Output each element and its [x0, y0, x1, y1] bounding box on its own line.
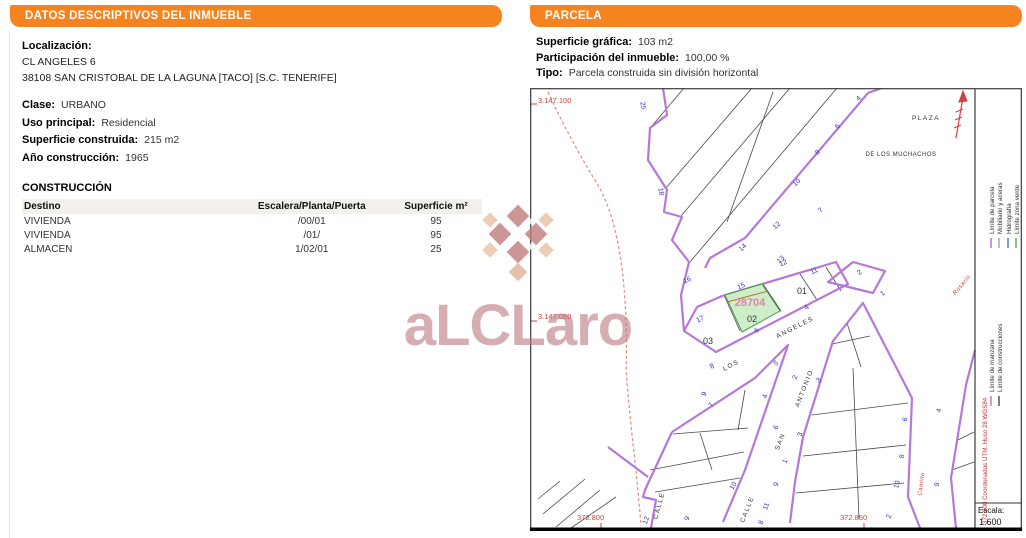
cell-escalera: /01/ — [234, 228, 390, 242]
plaza-label-2: DE LOS MUCHACHOS — [865, 152, 936, 158]
table-header-row: Destino Escalera/Planta/Puerta Superfici… — [22, 199, 482, 214]
field-label: Superficie gráfica: — [536, 36, 632, 48]
cell-destino: VIVIENDA — [22, 214, 234, 228]
field-value: 1965 — [125, 152, 148, 164]
cadastral-map: 3.147.100 3.147.050 372.800 372.850 PLAZ… — [530, 88, 1022, 531]
field-superficie: Superficie construida:215 m2 — [22, 132, 492, 150]
field-clase: Clase:URBANO — [22, 97, 492, 115]
parcel-ref-label: 28704 — [735, 297, 766, 309]
parcela-info: Superficie gráfica:103 m2 Participación … — [536, 35, 1022, 82]
field-value: Residencial — [101, 117, 155, 129]
table-row: VIVIENDA /01/ 95 — [22, 228, 482, 242]
field-label: Uso principal: — [22, 117, 95, 129]
legend-limite-manzana: Límite de manzana — [989, 339, 996, 392]
legend-mobiliario-aceras: Mobiliario y aceras — [997, 182, 1004, 234]
field-uso: Uso principal:Residencial — [22, 115, 492, 133]
datos-inmueble-panel: Localización: CL ANGELES 6 38108 SAN CRI… — [22, 38, 492, 256]
parcela-header: PARCELA — [530, 5, 1022, 27]
table-row: VIVIENDA /00/01 95 — [22, 214, 482, 228]
legend-limite-zona-verde: Límite zona verde — [1014, 184, 1021, 234]
legend-utm-note: 372.900 Coordenadas UTM. Huso 28 WGS84 — [982, 397, 989, 524]
field-participacion: Participación del inmueble:100,00 % — [536, 51, 1022, 67]
scale-value: 1.600 — [979, 517, 1002, 527]
cell-destino: VIVIENDA — [22, 228, 234, 242]
cell-superficie: 95 — [390, 228, 482, 242]
localizacion-label: Localización: — [22, 38, 492, 54]
coord-mid-left: 3.147.050 — [538, 312, 571, 321]
scale-label: Escala: — [978, 506, 1004, 515]
col-superficie: Superficie m² — [390, 199, 482, 214]
field-tipo: Tipo:Parcela construida sin división hor… — [536, 66, 1022, 82]
field-anyo: Año construcción:1965 — [22, 150, 492, 168]
field-label: Clase: — [22, 99, 55, 111]
col-destino: Destino — [22, 199, 234, 214]
map-svg: 3.147.100 3.147.050 372.800 372.850 PLAZ… — [530, 88, 1022, 531]
plaza-label: PLAZA — [912, 115, 940, 122]
field-value: Parcela construida sin división horizont… — [569, 67, 759, 79]
parcel-label-02: 02 — [747, 314, 757, 324]
address-line2: 38108 SAN CRISTOBAL DE LA LAGUNA [TACO] … — [22, 70, 492, 86]
field-label: Superficie construida: — [22, 134, 138, 146]
coord-top-left: 3.147.100 — [538, 96, 571, 105]
address-line1: CL ANGELES 6 — [22, 54, 492, 70]
field-superficie-grafica: Superficie gráfica:103 m2 — [536, 35, 1022, 51]
field-label: Participación del inmueble: — [536, 52, 679, 64]
cell-escalera: 1/02/01 — [234, 242, 390, 256]
construccion-title: CONSTRUCCIÓN — [22, 182, 492, 194]
datos-inmueble-header: DATOS DESCRIPTIVOS DEL INMUEBLE — [10, 5, 502, 27]
parcel-label-01: 01 — [797, 286, 807, 296]
legend-hidrografia: Hidrografía — [1006, 203, 1013, 234]
cell-destino: ALMACEN — [22, 242, 234, 256]
cell-escalera: /00/01 — [234, 214, 390, 228]
coord-bottom-left: 372.800 — [577, 513, 604, 522]
table-row: ALMACEN 1/02/01 25 — [22, 242, 482, 256]
field-value: URBANO — [61, 99, 106, 111]
field-value: 100,00 % — [685, 52, 729, 64]
field-value: 103 m2 — [638, 36, 673, 48]
construccion-table: Destino Escalera/Planta/Puerta Superfici… — [22, 199, 482, 256]
parcel-label-03: 03 — [703, 336, 713, 346]
cell-superficie: 25 — [390, 242, 482, 256]
field-value: 215 m2 — [144, 134, 179, 146]
legend-limite-parcela: Límite de parcela — [989, 186, 996, 234]
col-escalera: Escalera/Planta/Puerta — [234, 199, 390, 214]
left-panel-edge — [9, 30, 10, 538]
legend-limite-construcciones: Límite de construcciones — [997, 324, 1004, 392]
field-label: Tipo: — [536, 67, 563, 79]
field-label: Año construcción: — [22, 152, 119, 164]
coord-bottom-right: 372.850 — [840, 513, 867, 522]
cell-superficie: 95 — [390, 214, 482, 228]
